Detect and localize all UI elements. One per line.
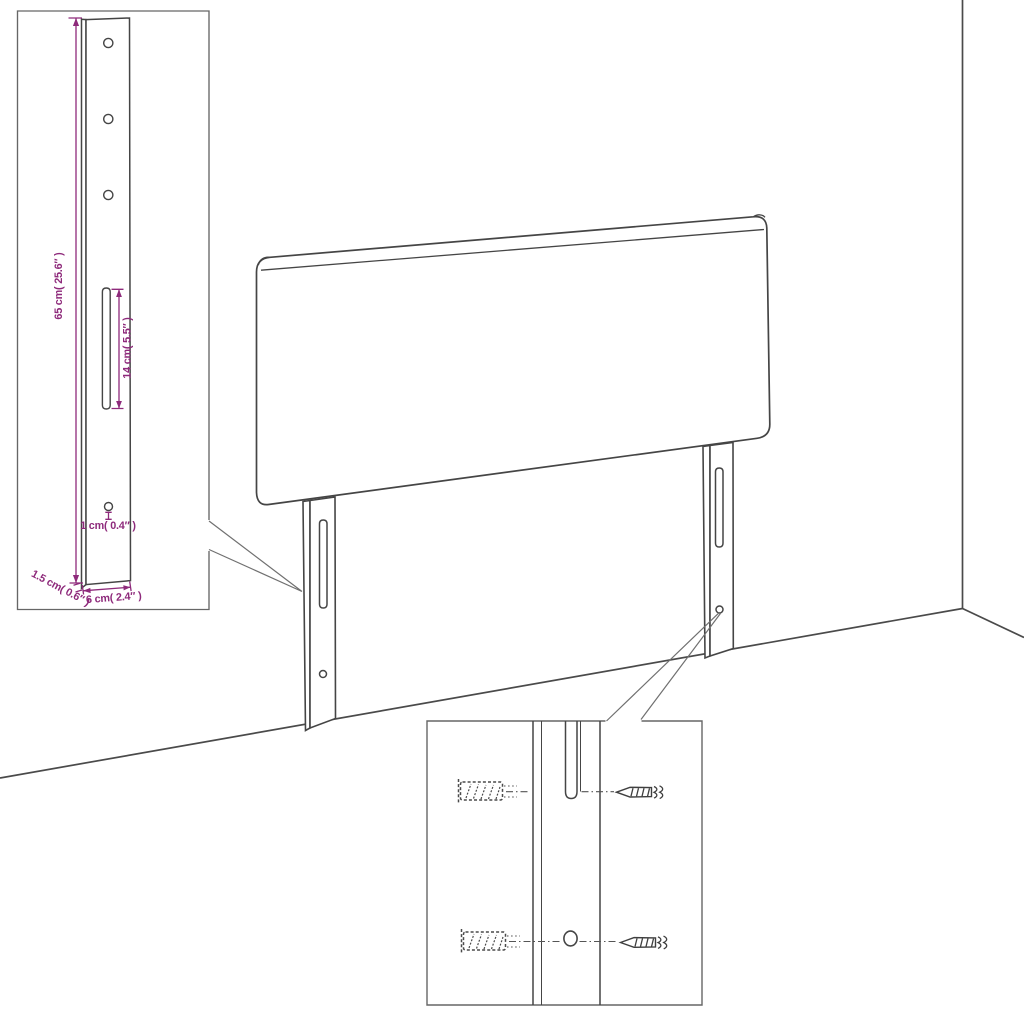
arrowhead-up-icon [73, 18, 79, 26]
callout-line-leg-detail [209, 521, 302, 592]
callout-lines [209, 521, 721, 721]
hardware-detail-inset [427, 721, 702, 1005]
right-mounting-leg [703, 443, 733, 659]
arrowhead-left-icon [83, 588, 91, 593]
headboard [257, 215, 770, 505]
dimension-leg-width: 6 cm( 2.4″ ) [82, 582, 142, 607]
left-mounting-leg [303, 497, 336, 731]
callout-line-hardware-detail [607, 613, 721, 721]
bracket-front-face [86, 18, 131, 585]
dimension-label-leg-height: 65 cm( 25.6″ ) [53, 252, 65, 320]
floor-line-right [963, 609, 1024, 638]
headboard-panel [257, 217, 770, 505]
right-leg-side-face [703, 446, 710, 659]
dimension-label-hole-diameter: 1 cm( 0.4″ ) [80, 520, 136, 532]
hardware-inset-box [427, 721, 702, 1005]
left-leg-side-face [303, 501, 310, 731]
dimension-label-leg-width: 6 cm( 2.4″ ) [86, 590, 143, 606]
arrowhead-down-icon [73, 575, 79, 583]
dimension-label-slot-length: 14 cm( 5.5″ ) [122, 317, 134, 379]
right-leg-front-face [710, 443, 733, 657]
left-leg-front-face [310, 497, 336, 728]
leg-detail-inset: 65 cm( 25.6″ ) 14 cm( 5.5″ ) 1 cm( 0.4″ … [18, 11, 210, 610]
dimension-leg-height: 65 cm( 25.6″ ) [53, 18, 83, 583]
diagram-canvas: 65 cm( 25.6″ ) 14 cm( 5.5″ ) 1 cm( 0.4″ … [0, 0, 1024, 1024]
assembly-diagram: 65 cm( 25.6″ ) 14 cm( 5.5″ ) 1 cm( 0.4″ … [0, 0, 1024, 1024]
